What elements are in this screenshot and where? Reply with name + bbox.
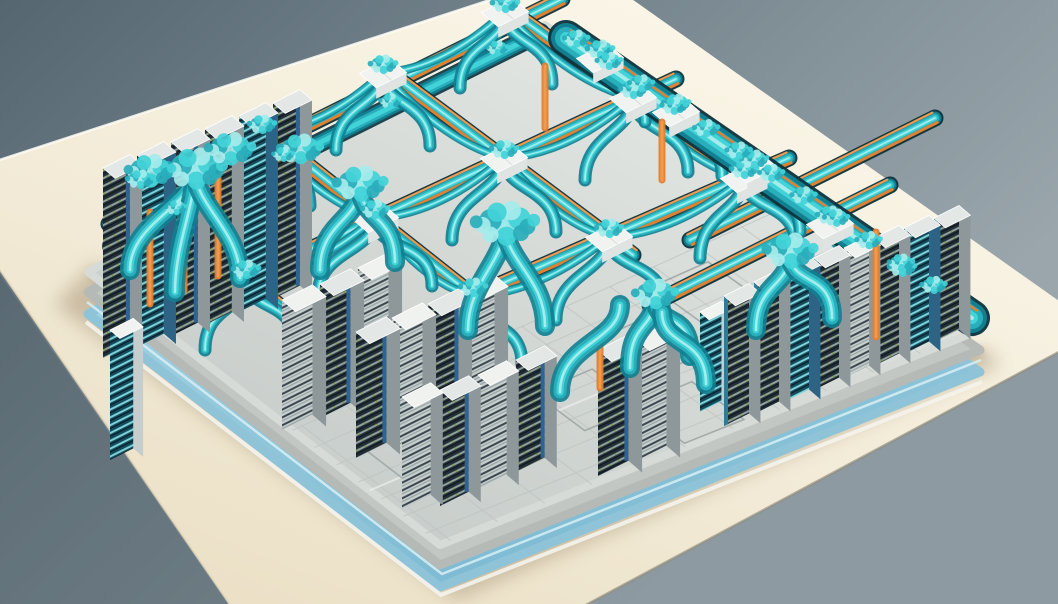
fiber-fluff xyxy=(919,282,924,287)
fiber-fluff xyxy=(372,211,380,219)
fiber-fluff xyxy=(585,35,590,40)
fiber-fluff xyxy=(683,102,688,107)
fiber-fluff xyxy=(795,197,802,204)
fiber-fluff xyxy=(796,187,804,195)
fiber-fluff xyxy=(367,185,380,198)
fiber-fluff xyxy=(661,295,672,306)
fiber-fluff xyxy=(602,53,610,61)
fiber-fluff xyxy=(505,44,509,48)
fiber-fluff xyxy=(164,205,168,209)
fiber-fluff xyxy=(606,230,614,238)
fiber-fluff xyxy=(677,106,684,113)
fiber-fluff xyxy=(280,155,287,162)
fiber-fluff xyxy=(286,155,292,161)
fiber-fluff xyxy=(387,102,394,109)
fiber-fluff xyxy=(730,152,737,159)
fiber-fluff xyxy=(898,264,906,272)
fiber-fluff xyxy=(650,79,655,84)
fiber-fluff xyxy=(741,171,749,179)
fiber-fluff xyxy=(231,266,237,272)
fiber-fluff xyxy=(601,219,609,227)
fiber-fluff xyxy=(757,170,762,175)
fiber-fluff xyxy=(650,296,663,309)
fiber-fluff xyxy=(605,62,613,70)
fiber-fluff xyxy=(247,142,257,152)
rack-side-face xyxy=(959,205,970,339)
fiber-fluff xyxy=(845,214,850,219)
fiber-fluff xyxy=(784,253,800,269)
fiber-fluff xyxy=(644,84,651,91)
fiber-fluff xyxy=(179,149,197,167)
fiber-fluff xyxy=(465,278,473,286)
fiber-fluff xyxy=(124,165,134,175)
rack-post xyxy=(724,294,728,426)
fiber-fluff xyxy=(887,259,892,264)
rack-side-face xyxy=(386,317,400,455)
fiber-fluff xyxy=(643,280,656,293)
fiber-fluff xyxy=(236,150,248,162)
fiber-fluff xyxy=(224,151,238,165)
fiber-fluff xyxy=(789,192,794,197)
fiber-fluff xyxy=(610,45,616,51)
fiber-fluff xyxy=(618,86,624,92)
fiber-fluff xyxy=(839,218,846,225)
fiber-fluff xyxy=(513,225,529,241)
fiber-fluff xyxy=(272,120,278,126)
fiber-fluff xyxy=(501,151,509,159)
fiber-fluff xyxy=(470,289,478,297)
fiber-fluff xyxy=(640,296,651,307)
rack-side-face xyxy=(469,376,481,502)
fiber-fluff xyxy=(569,30,577,38)
fiber-fluff xyxy=(173,209,180,216)
fiber-fluff xyxy=(288,135,301,148)
fiber-fluff xyxy=(306,150,317,161)
fiber-fluff xyxy=(761,244,771,254)
fiber-fluff xyxy=(125,176,131,182)
fiber-fluff xyxy=(137,155,151,169)
fiber-fluff xyxy=(562,35,567,40)
fiber-fluff xyxy=(247,121,253,127)
fiber-fluff xyxy=(697,129,704,136)
fiber-fluff xyxy=(742,151,749,158)
fiber-fluff xyxy=(878,236,883,241)
fiber-fluff xyxy=(827,219,834,226)
fiber-fluff xyxy=(137,181,145,189)
fiber-fluff xyxy=(892,264,899,271)
fiber-fluff xyxy=(748,170,755,177)
fiber-fluff xyxy=(150,175,156,181)
fiber-fluff xyxy=(613,229,620,236)
fiber-fluff xyxy=(612,62,619,69)
fiber-fluff xyxy=(808,243,818,253)
fiber-fluff xyxy=(494,151,501,158)
fiber-fluff xyxy=(458,284,464,290)
fiber-fluff xyxy=(508,150,515,157)
fiber-fluff xyxy=(179,208,185,214)
fiber-fluff xyxy=(204,143,214,153)
fiber-fluff xyxy=(385,205,391,211)
fiber-fluff xyxy=(618,57,623,62)
fiber-fluff xyxy=(238,260,246,268)
fiber-fluff xyxy=(477,288,484,295)
fiber-fluff xyxy=(295,151,308,164)
fiber-fluff xyxy=(729,166,735,172)
fiber-fluff xyxy=(772,253,785,266)
fiber-fluff xyxy=(379,210,386,217)
fiber-fluff xyxy=(495,5,502,12)
fiber-fluff xyxy=(502,5,510,13)
rack-side-face xyxy=(312,285,326,427)
fiber-fluff xyxy=(393,60,399,66)
fiber-fluff xyxy=(815,212,821,218)
fiber-fluff xyxy=(500,48,506,54)
fiber-fluff xyxy=(266,125,273,132)
fiber-fluff xyxy=(594,58,599,63)
fiber-fluff xyxy=(859,241,866,248)
fiber-fluff xyxy=(213,151,225,163)
fiber-fluff xyxy=(490,49,496,55)
fiber-fluff xyxy=(387,65,394,72)
fiber-fluff xyxy=(833,219,841,227)
fiber-fluff xyxy=(496,140,504,148)
fiber-fluff xyxy=(497,227,516,246)
fiber-fluff xyxy=(600,62,607,69)
fiber-fluff xyxy=(619,224,625,230)
fiber-fluff xyxy=(627,80,632,85)
fiber-fluff xyxy=(276,155,282,161)
fiber-fluff xyxy=(937,286,944,293)
fiber-fluff xyxy=(331,177,341,187)
scene-3d-render xyxy=(0,0,1058,604)
fiber-fluff xyxy=(780,169,785,174)
fiber-fluff xyxy=(861,232,869,240)
fiber-fluff xyxy=(813,191,818,196)
fiber-fluff xyxy=(585,46,591,52)
fiber-fluff xyxy=(368,61,374,67)
rack-front-face xyxy=(110,318,133,460)
fiber-fluff xyxy=(592,40,600,48)
fiber-fluff xyxy=(188,172,206,190)
fiber-fluff xyxy=(709,129,716,136)
fiber-fluff xyxy=(367,200,375,208)
fiber-fluff xyxy=(926,277,934,285)
fiber-fluff xyxy=(594,225,600,231)
fiber-fluff xyxy=(184,204,188,208)
fiber-fluff xyxy=(573,40,581,48)
fiber-fluff xyxy=(632,85,639,92)
fiber-fluff xyxy=(774,174,781,181)
fiber-fluff xyxy=(393,102,399,108)
fiber-fluff xyxy=(665,107,672,114)
fiber-fluff xyxy=(217,133,231,147)
fiber-fluff xyxy=(751,161,759,169)
fiber-fluff xyxy=(692,125,697,130)
fiber-fluff xyxy=(800,197,808,205)
fiber-fluff xyxy=(631,288,640,297)
fiber-fluff xyxy=(254,115,262,123)
fiber-fluff xyxy=(623,91,630,98)
fiber-fluff xyxy=(256,265,262,271)
fiber-fluff xyxy=(734,171,741,178)
fiber-fluff xyxy=(764,165,772,173)
fiber-fluff xyxy=(380,66,388,74)
fiber-fluff xyxy=(670,287,679,296)
fiber-fluff xyxy=(291,151,295,155)
fiber-fluff xyxy=(170,200,177,207)
fiber-fluff xyxy=(252,126,259,133)
fiber-fluff xyxy=(483,283,489,289)
fiber-fluff xyxy=(514,145,520,151)
fiber-fluff xyxy=(365,211,372,218)
fiber-fluff xyxy=(579,39,586,46)
fiber-fluff xyxy=(375,55,383,63)
fiber-fluff xyxy=(485,45,489,49)
fiber-fluff xyxy=(169,209,175,215)
scene-canvas xyxy=(0,0,1058,604)
fiber-fluff xyxy=(829,209,837,217)
fiber-fluff xyxy=(744,161,751,168)
fiber-fluff xyxy=(398,98,402,102)
fiber-fluff xyxy=(360,206,366,212)
fiber-fluff xyxy=(509,4,516,11)
fiber-fluff xyxy=(865,241,873,249)
fiber-fluff xyxy=(259,126,267,134)
fiber-fluff xyxy=(872,241,879,248)
fiber-fluff xyxy=(567,40,574,47)
rack-post xyxy=(296,90,300,286)
fiber-fluff xyxy=(342,186,355,199)
fiber-fluff xyxy=(590,51,597,58)
fiber-fluff xyxy=(346,167,362,183)
fiber-fluff xyxy=(487,203,506,222)
fiber-fluff xyxy=(470,215,483,228)
fiber-fluff xyxy=(494,49,501,56)
fiber-fluff xyxy=(797,252,810,265)
fiber-fluff xyxy=(132,170,140,178)
fiber-fluff xyxy=(354,186,370,202)
fiber-fluff xyxy=(315,142,324,151)
fiber-fluff xyxy=(527,214,540,227)
fiber-fluff xyxy=(758,160,765,167)
fiber-fluff xyxy=(943,281,948,286)
fiber-fluff xyxy=(854,237,859,242)
fiber-fluff xyxy=(735,152,743,160)
fiber-fluff xyxy=(490,0,496,5)
fiber-fluff xyxy=(634,75,642,83)
fiber-fluff xyxy=(277,147,284,154)
fiber-fluff xyxy=(236,271,243,278)
rack-side-face xyxy=(545,346,557,468)
fiber-fluff xyxy=(699,120,707,128)
fiber-fluff xyxy=(910,259,915,264)
fiber-fluff xyxy=(174,172,189,187)
fiber-fluff xyxy=(731,142,739,150)
fiber-fluff xyxy=(630,91,638,99)
fiber-fluff xyxy=(463,289,470,296)
fiber-fluff xyxy=(599,230,606,237)
fiber-fluff xyxy=(489,146,495,152)
fiber-fluff xyxy=(776,234,792,250)
fiber-fluff xyxy=(491,41,498,48)
fiber-fluff xyxy=(762,174,769,181)
fiber-fluff xyxy=(271,152,275,156)
fiber-fluff xyxy=(243,271,251,279)
fiber-fluff xyxy=(203,170,218,185)
fiber-fluff xyxy=(483,227,499,243)
fiber-fluff xyxy=(378,98,382,102)
fiber-fluff xyxy=(807,196,814,203)
fiber-fluff xyxy=(130,181,137,188)
fiber-fluff xyxy=(822,215,827,220)
fiber-fluff xyxy=(703,129,711,137)
fiber-fluff xyxy=(894,254,902,262)
fiber-fluff xyxy=(659,103,664,108)
rack-side-face xyxy=(431,383,443,505)
fiber-fluff xyxy=(748,147,753,152)
fiber-fluff xyxy=(930,286,938,294)
fiber-fluff xyxy=(768,174,776,182)
fiber-fluff xyxy=(373,66,380,73)
fiber-fluff xyxy=(667,97,675,105)
fiber-fluff xyxy=(250,270,257,277)
fiber-fluff xyxy=(167,164,177,174)
fiber-fluff xyxy=(378,176,388,186)
fiber-fluff xyxy=(764,155,770,161)
fiber-fluff xyxy=(724,147,729,152)
fiber-fluff xyxy=(638,85,646,93)
rack-side-face xyxy=(266,103,278,309)
fiber-fluff xyxy=(156,172,168,184)
rack-side-face xyxy=(507,361,519,485)
fiber-fluff xyxy=(904,263,911,270)
fiber-fluff xyxy=(715,124,720,129)
fiber-fluff xyxy=(924,286,931,293)
fiber-fluff xyxy=(384,94,391,101)
rack-side-face xyxy=(133,318,143,456)
fiber-fluff xyxy=(383,102,389,108)
rack-side-face xyxy=(899,225,910,363)
fiber-fluff xyxy=(670,107,678,115)
fiber-fluff xyxy=(144,180,151,187)
